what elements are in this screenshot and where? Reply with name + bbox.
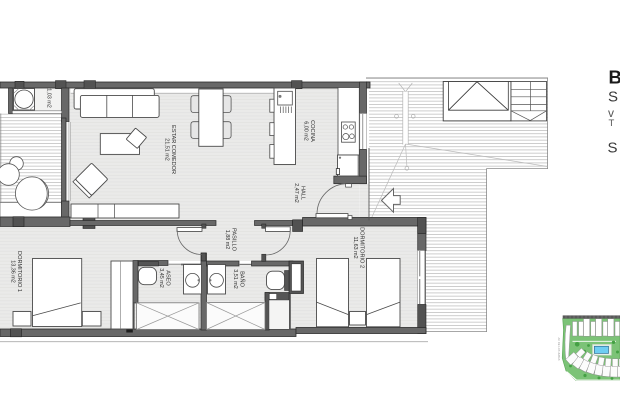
svg-text:HALL: HALL [300,186,306,200]
svg-text:S: S [608,89,618,106]
svg-text:21,51 m2: 21,51 m2 [164,138,170,160]
svg-text:3,45 m2: 3,45 m2 [158,268,164,287]
svg-text:ESTAR COMEDOR: ESTAR COMEDOR [170,125,176,174]
svg-text:11,63 m2: 11,63 m2 [352,237,358,259]
svg-text:PASILLO: PASILLO [231,228,237,252]
svg-text:6,00 m2: 6,00 m2 [303,121,309,140]
svg-text:ASEO: ASEO [165,270,171,286]
svg-text:AV. DE LOS JUBAS: AV. DE LOS JUBAS [557,337,561,360]
svg-text:2,47 m2: 2,47 m2 [293,183,299,202]
svg-text:13,36 m2: 13,36 m2 [10,260,16,282]
svg-text:B: B [609,67,620,88]
svg-text:DORMITORIO 1: DORMITORIO 1 [16,251,22,292]
svg-text:DORMITORIO 2: DORMITORIO 2 [359,227,365,268]
svg-text:1,88 m2: 1,88 m2 [224,230,230,249]
svg-text:S: S [608,140,618,157]
svg-text:1,03 m2: 1,03 m2 [46,88,52,107]
svg-text:3,51 m2: 3,51 m2 [232,269,238,288]
svg-text:T: T [609,118,615,129]
svg-text:BAÑO: BAÑO [239,271,246,288]
svg-text:COCINA: COCINA [309,120,315,142]
